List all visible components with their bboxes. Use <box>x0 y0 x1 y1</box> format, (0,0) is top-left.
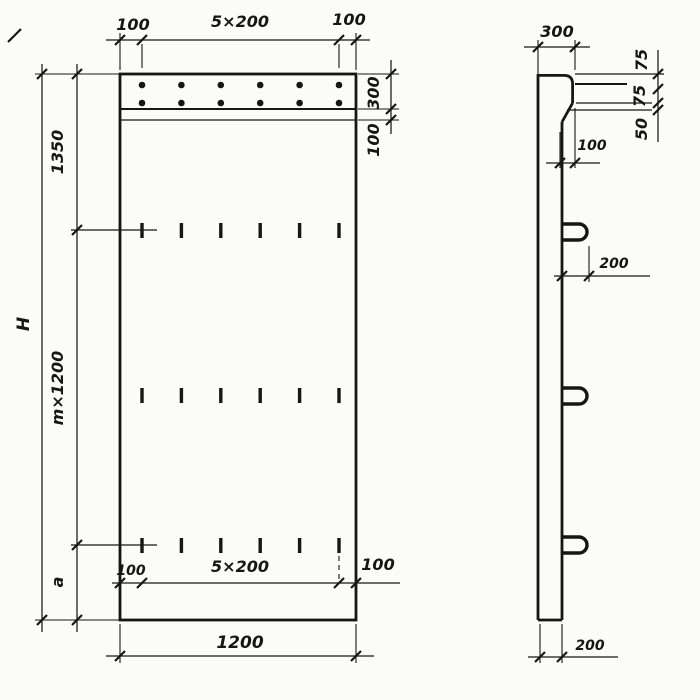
dim-label-1200: 1200 <box>216 633 263 653</box>
dim-label-side-300: 300 <box>540 22 573 41</box>
ledge-chamfer <box>562 103 573 122</box>
anchor-dots-grid <box>139 82 343 107</box>
dim-label-loop-200: 200 <box>599 256 628 272</box>
dim-side-top-300: 300 <box>524 22 590 70</box>
slot-row-upper <box>142 223 339 238</box>
slot-row-middle <box>142 388 339 403</box>
dim-bottom-overall: 1200 <box>106 624 374 663</box>
lifting-loop-upper <box>562 224 587 240</box>
dim-label-band-300: 300 <box>364 76 383 109</box>
dim-label-bottom-inner-right: 100 <box>361 555 394 574</box>
dim-label-bottom-inner-center: 5×200 <box>211 557 269 576</box>
ledge-top-profile <box>538 75 573 103</box>
lifting-loop-lower <box>562 537 587 553</box>
side-view: 300 75 75 50 100 200 <box>524 22 664 663</box>
dim-label-top-right: 100 <box>332 10 365 29</box>
dim-label-a: a <box>48 577 67 588</box>
dim-label-ledge-75-middle: 75 <box>630 85 649 107</box>
dim-label-bottom-inner-left: 100 <box>116 563 145 579</box>
front-view: 100 5×200 100 H 1350 m×1200 a <box>8 10 400 663</box>
slot-row-lower <box>142 538 339 553</box>
dim-side-ledge-offset: 100 <box>546 108 607 168</box>
stray-pen-mark <box>8 29 21 42</box>
dim-side-loop-offset: 200 <box>554 246 650 282</box>
panel-dimension-drawing: 100 5×200 100 H 1350 m×1200 a <box>0 0 700 700</box>
dim-label-ledge-50: 50 <box>632 118 651 140</box>
lifting-loop-middle <box>562 388 587 404</box>
dim-side-ledge-stack: 75 75 50 <box>630 49 663 142</box>
dim-label-strip-100: 100 <box>364 123 383 156</box>
dim-label-ledge-offset-100: 100 <box>577 138 606 154</box>
drawing-sheet: 100 5×200 100 H 1350 m×1200 a <box>0 0 700 700</box>
dim-right-band: 300 100 <box>358 60 399 157</box>
dim-label-1350: 1350 <box>48 130 67 175</box>
dim-label-bottom-200: 200 <box>575 638 604 654</box>
dim-label-top-left: 100 <box>116 15 149 34</box>
dim-side-bottom-200: 200 <box>528 624 618 663</box>
dim-label-m-1200: m×1200 <box>48 351 67 426</box>
dim-label-top-center: 5×200 <box>211 12 269 31</box>
dim-label-ledge-75-upper: 75 <box>632 49 651 71</box>
dim-left-segments: 1350 m×1200 a <box>48 64 82 632</box>
panel-outline <box>120 74 356 620</box>
dim-label-overall-height: H <box>14 317 34 331</box>
dim-top-chain: 100 5×200 100 <box>106 10 370 70</box>
